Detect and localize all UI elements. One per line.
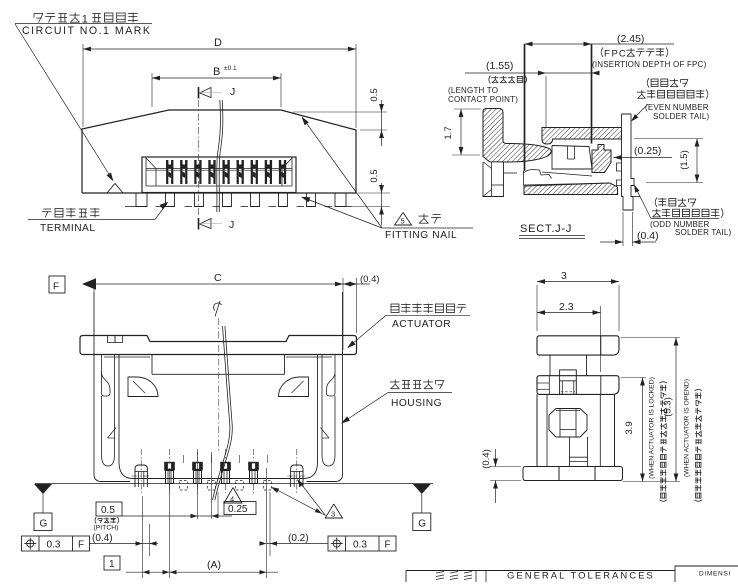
- svg-text:ACTUATOR: ACTUATOR: [392, 319, 451, 330]
- svg-text:F: F: [604, 49, 610, 60]
- svg-text:J: J: [229, 219, 234, 231]
- svg-text:3.9: 3.9: [624, 421, 635, 434]
- svg-text:(0.2): (0.2): [288, 533, 309, 544]
- svg-text:(0.4): (0.4): [481, 449, 492, 469]
- svg-text:(0.25): (0.25): [634, 145, 661, 157]
- svg-text:SOLDER TAIL): SOLDER TAIL): [675, 228, 731, 237]
- svg-text:0.5: 0.5: [101, 505, 115, 516]
- svg-text:F: F: [385, 540, 391, 551]
- svg-text:(INSERTION DEPTH OF FPC): (INSERTION DEPTH OF FPC): [592, 60, 707, 69]
- svg-text:1.7: 1.7: [443, 126, 454, 139]
- svg-text:CONTACT POINT): CONTACT POINT): [448, 95, 518, 104]
- svg-text:(A): (A): [207, 559, 221, 571]
- svg-text:HOUSING: HOUSING: [391, 398, 442, 409]
- svg-text:±0.1: ±0.1: [224, 65, 237, 72]
- svg-text:G: G: [40, 519, 48, 530]
- svg-text:5: 5: [401, 217, 405, 226]
- svg-text:(0.4): (0.4): [92, 533, 113, 544]
- svg-text:C: C: [214, 272, 222, 284]
- svg-text:4: 4: [230, 495, 234, 504]
- svg-text:(2.45): (2.45): [617, 33, 644, 45]
- svg-text:(1.5): (1.5): [679, 150, 690, 170]
- svg-text:0.5: 0.5: [369, 169, 380, 182]
- svg-text:TERMINAL: TERMINAL: [40, 223, 96, 234]
- svg-text:2.3: 2.3: [559, 301, 574, 313]
- svg-text:(EVEN NUMBER: (EVEN NUMBER: [645, 103, 709, 112]
- svg-text:0.25: 0.25: [228, 504, 248, 515]
- svg-text:(1.55): (1.55): [486, 60, 513, 72]
- svg-text:SECT.J-J: SECT.J-J: [520, 223, 572, 235]
- svg-text:0.3: 0.3: [353, 540, 367, 551]
- svg-text:3: 3: [331, 510, 335, 519]
- svg-text:(0.4): (0.4): [360, 274, 380, 285]
- svg-text:SOLDER TAIL): SOLDER TAIL): [653, 112, 709, 121]
- svg-text:(0.4): (0.4): [637, 230, 659, 242]
- svg-text:(5.3): (5.3): [663, 397, 674, 417]
- svg-text:(PITCH): (PITCH): [94, 525, 119, 532]
- svg-text:(WHEN ACTUATOR IS LOCKED): (WHEN ACTUATOR IS LOCKED): [649, 377, 656, 479]
- svg-text:1: 1: [109, 559, 115, 570]
- svg-text:(WHEN ACTUATOR IS OPEND): (WHEN ACTUATOR IS OPEND): [684, 379, 691, 477]
- svg-text:F: F: [53, 282, 59, 293]
- svg-text:F: F: [78, 540, 84, 551]
- svg-text:J: J: [230, 86, 235, 98]
- svg-text:CIRCUIT NO.1 MARK: CIRCUIT NO.1 MARK: [22, 25, 152, 37]
- svg-text:G: G: [418, 519, 426, 530]
- svg-text:FITTING NAIL: FITTING NAIL: [385, 230, 457, 241]
- svg-text:B: B: [213, 66, 220, 78]
- svg-text:(LENGTH TO: (LENGTH TO: [448, 86, 498, 95]
- svg-text:0.5: 0.5: [369, 88, 380, 101]
- svg-text:C: C: [619, 49, 626, 60]
- svg-text:D: D: [214, 37, 222, 49]
- svg-text:DIMENSI: DIMENSI: [699, 571, 731, 578]
- svg-text:0.3: 0.3: [47, 540, 61, 551]
- svg-text:P: P: [611, 49, 617, 60]
- svg-text:3: 3: [561, 270, 567, 282]
- svg-text:GENERAL TOLERANCES: GENERAL TOLERANCES: [507, 571, 655, 582]
